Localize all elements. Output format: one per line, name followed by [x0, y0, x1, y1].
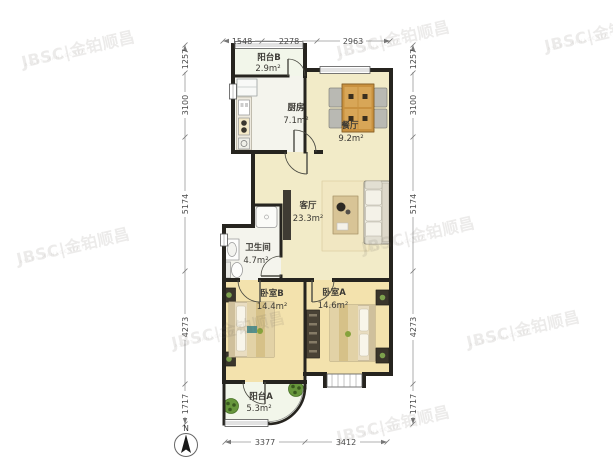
north-label: N	[183, 424, 189, 433]
dim-bottom-1: 3377	[255, 438, 275, 447]
dimension-right: 1257 3100 5174 4273 1717	[409, 43, 418, 427]
kitchen-sink	[239, 100, 250, 115]
room-area-bedroom-b: 14.4m²	[257, 302, 288, 312]
bed-a	[330, 305, 375, 361]
dim-right-4: 4273	[409, 317, 418, 337]
dining-chair	[329, 109, 342, 128]
tv-cabinet	[283, 190, 291, 240]
plant	[224, 399, 239, 414]
room-label-dining: 餐厅	[340, 120, 359, 131]
room-area-bedroom-a: 14.6m²	[318, 301, 349, 311]
shower	[256, 207, 277, 228]
dining-chair	[374, 109, 387, 128]
dim-left-5: 1717	[181, 394, 190, 414]
wardrobe	[307, 310, 320, 358]
dim-right-5: 1717	[409, 394, 418, 414]
toilet	[225, 262, 243, 278]
compass: N	[175, 424, 198, 457]
room-area-bathroom: 4.7m²	[243, 256, 268, 266]
dim-bottom-2: 3412	[336, 438, 356, 447]
dining-window	[320, 67, 370, 74]
dim-left-2: 3100	[181, 95, 190, 115]
room-area-dining: 9.2m²	[338, 134, 363, 144]
kitchen-counter	[237, 97, 252, 150]
room-area-living: 23.3m²	[293, 214, 324, 224]
floor-plan-drawing: 阳台B 2.9m² 厨房 7.1m² 餐厅 9.2m² 客厅 23.3m² 卫生…	[0, 0, 613, 460]
dim-top-1: 1548	[232, 37, 252, 46]
dimension-left: 1257 3100 5174 4273 1717	[181, 43, 190, 427]
dim-left-4: 4273	[181, 317, 190, 337]
fridge	[237, 79, 257, 96]
dimension-bottom: 3377 3412	[223, 438, 390, 447]
room-label-kitchen: 厨房	[287, 102, 304, 113]
dining-chair	[329, 88, 342, 107]
sofa	[364, 181, 390, 244]
bay-window	[327, 374, 362, 387]
room-area-balcony-a: 5.3m²	[246, 404, 271, 414]
room-label-balcony-a: 阳台A	[249, 391, 273, 402]
room-label-balcony-b: 阳台B	[257, 52, 280, 63]
room-label-bathroom: 卫生间	[245, 242, 271, 253]
dim-left-3: 5174	[181, 194, 190, 214]
room-area-balcony-b: 2.9m²	[255, 64, 280, 74]
room-area-kitchen: 7.1m²	[283, 116, 308, 126]
bathroom-window	[221, 234, 228, 246]
dining-chair	[374, 88, 387, 107]
room-label-bedroom-a: 卧室A	[322, 287, 346, 298]
dim-left-1: 1257	[181, 49, 190, 69]
dim-top-2: 2278	[279, 37, 299, 46]
dim-right-1: 1257	[409, 49, 418, 69]
kitchen-window	[230, 84, 237, 99]
room-label-living: 客厅	[298, 200, 317, 211]
dim-right-3: 5174	[409, 194, 418, 214]
water-heater	[239, 138, 250, 149]
dim-top-3: 2963	[343, 37, 363, 46]
floor-plan-canvas: 阳台B 2.9m² 厨房 7.1m² 餐厅 9.2m² 客厅 23.3m² 卫生…	[0, 0, 613, 460]
room-label-bedroom-b: 卧室B	[260, 288, 283, 299]
dim-right-2: 3100	[409, 95, 418, 115]
coffee-table	[333, 196, 358, 234]
